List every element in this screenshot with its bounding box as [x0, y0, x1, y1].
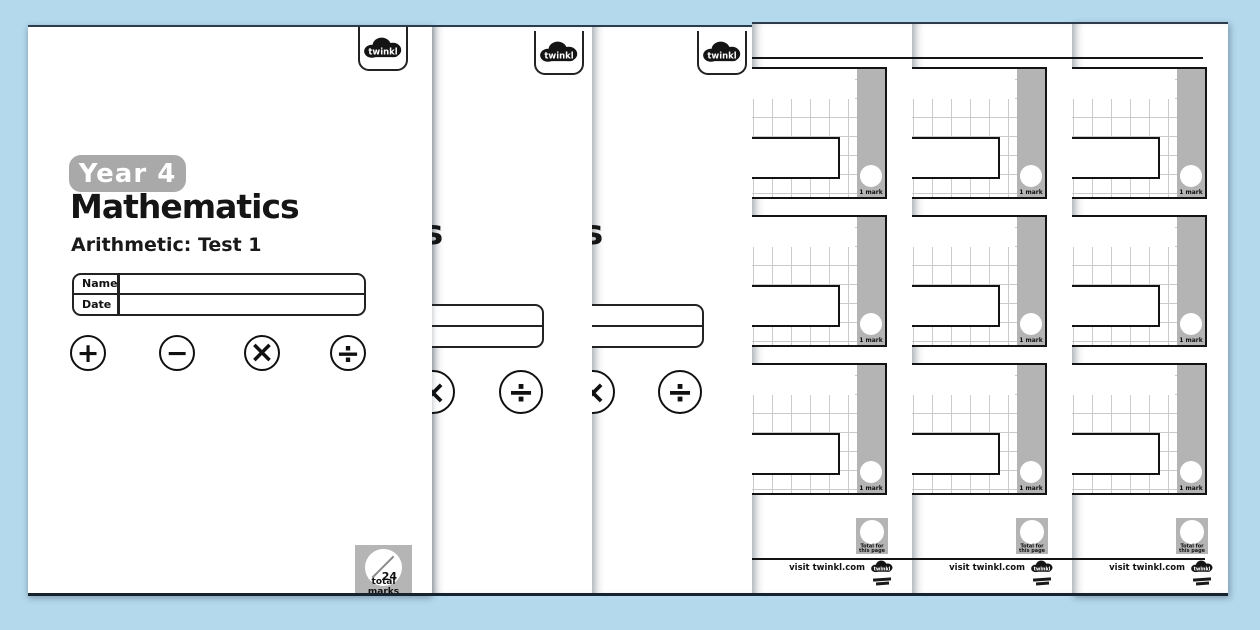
- mark-circle: [860, 165, 882, 187]
- name-date-table: Name Date: [72, 273, 366, 316]
- mark-circle: [1020, 165, 1042, 187]
- mark-column: 1 mark: [857, 365, 885, 493]
- table-divider: [432, 325, 542, 327]
- clipped-title-tail: s: [592, 213, 603, 253]
- cover-page-strip-2: twinkl s × ÷: [432, 25, 592, 596]
- page-subtitle: Arithmetic: Test 1: [71, 234, 262, 256]
- mark-label: 1 mark: [1177, 337, 1205, 344]
- multiply-icon: ×: [592, 370, 615, 414]
- mark-column: 1 mark: [857, 217, 885, 345]
- twinkl-cloud-icon: twinkl: [538, 39, 580, 65]
- mark-label: 1 mark: [1177, 485, 1205, 492]
- twinkl-cloud-icon: twinkl: [362, 35, 404, 61]
- twinkl-cloud-icon: twinkl: [701, 39, 743, 65]
- multiply-icon: ×: [244, 335, 280, 371]
- mark-label: 1 mark: [1017, 485, 1045, 492]
- question-text-area: [752, 69, 855, 99]
- mark-column: 1 mark: [1017, 365, 1045, 493]
- mark-label: 1 mark: [857, 189, 885, 196]
- mark-label: 1 mark: [1177, 189, 1205, 196]
- question-text-area: [912, 365, 1015, 395]
- mark-column: 1 mark: [1177, 69, 1205, 197]
- multiply-icon: ×: [432, 370, 455, 414]
- cover-page: twinkl Year 4 Mathematics Arithmetic: Te…: [28, 25, 432, 596]
- page-total-label-2: this page: [1019, 549, 1045, 554]
- plus-icon: +: [70, 335, 106, 371]
- question-page-strip-2: 1 mark 1 mark 1 mark Total for this page: [912, 22, 1072, 596]
- page-total-circle: [1180, 520, 1204, 544]
- svg-text:twinkl: twinkl: [1194, 566, 1211, 572]
- mark-circle: [1020, 461, 1042, 483]
- header-rule: [912, 57, 1072, 59]
- mark-circle: [1020, 313, 1042, 335]
- mark-label: 1 mark: [1017, 337, 1045, 344]
- answer-box: [912, 433, 1000, 475]
- mark-circle: [1180, 165, 1202, 187]
- page-total-label-2: this page: [1179, 549, 1205, 554]
- question-block: 1 mark: [1072, 215, 1207, 347]
- divide-icon: ÷: [330, 335, 366, 371]
- answer-box: [1072, 285, 1160, 327]
- svg-text:twinkl: twinkl: [1034, 566, 1051, 572]
- page-total-badge: Total for this page: [1176, 518, 1208, 554]
- date-field: [120, 295, 364, 315]
- minus-icon: −: [159, 335, 195, 371]
- clipped-title-tail: s: [432, 213, 443, 253]
- question-block: 1 mark: [752, 67, 887, 199]
- mark-label: 1 mark: [1017, 189, 1045, 196]
- mark-label: 1 mark: [857, 485, 885, 492]
- question-block: 1 mark: [912, 67, 1047, 199]
- name-field: [120, 275, 364, 293]
- twinkl-logo-tab: twinkl: [358, 27, 408, 71]
- question-block: 1 mark: [1072, 67, 1207, 199]
- question-text-area: [752, 365, 855, 395]
- divide-icon: ÷: [499, 370, 543, 414]
- footer-rule: [1072, 558, 1205, 560]
- question-text-area: [752, 217, 855, 247]
- answer-box: [1072, 137, 1160, 179]
- page-total-badge: Total for this page: [1016, 518, 1048, 554]
- header-rule: [752, 57, 912, 59]
- page-total-label-2: this page: [859, 549, 885, 554]
- mark-column: 1 mark: [1177, 365, 1205, 493]
- twinkl-logo-tab: twinkl: [697, 31, 747, 75]
- name-date-table-clipped: [592, 304, 704, 348]
- mark-column: 1 mark: [857, 69, 885, 197]
- footer-url: visit twinkl.com: [1072, 563, 1185, 573]
- name-date-table-clipped: [432, 304, 544, 348]
- question-block: 1 mark: [912, 363, 1047, 495]
- answer-box: [912, 137, 1000, 179]
- twinkl-logo-text: twinkl: [368, 47, 397, 57]
- header-rule: [1072, 57, 1203, 59]
- question-text-area: [1072, 365, 1175, 395]
- question-page-strip-3: 1 mark 1 mark 1 mark Total for this page: [1072, 22, 1228, 596]
- mark-circle: [1180, 313, 1202, 335]
- name-row: Name: [74, 275, 364, 295]
- answer-box: [752, 137, 840, 179]
- page-total-circle: [1020, 520, 1044, 544]
- question-text-area: [1072, 69, 1175, 99]
- mark-column: 1 mark: [1017, 217, 1045, 345]
- footer-url: visit twinkl.com: [912, 563, 1025, 573]
- question-block: 1 mark: [752, 363, 887, 495]
- question-block: 1 mark: [752, 215, 887, 347]
- date-row: Date: [74, 295, 364, 315]
- page-total-circle: [860, 520, 884, 544]
- answer-box: [752, 285, 840, 327]
- twinkl-logo-text: twinkl: [707, 51, 736, 61]
- twinkl-logo-tab: twinkl: [534, 31, 584, 75]
- name-label: Name: [74, 275, 120, 293]
- answer-box: [1072, 433, 1160, 475]
- preview-stage: twinkl Year 4 Mathematics Arithmetic: Te…: [0, 0, 1260, 630]
- twinkl-stamp-icon: twinkl: [1029, 559, 1055, 583]
- table-divider: [592, 325, 702, 327]
- mark-circle: [860, 313, 882, 335]
- date-label: Date: [74, 295, 120, 315]
- question-text-area: [1072, 217, 1175, 247]
- page-title: Mathematics: [70, 187, 299, 226]
- cover-page-strip-3: twinkl s × ÷: [592, 25, 752, 596]
- total-marks-label: total marks: [355, 577, 412, 596]
- answer-box: [912, 285, 1000, 327]
- question-page-strip-1: 1 mark 1 mark 1 mark Total for this page: [752, 22, 912, 596]
- mark-circle: [860, 461, 882, 483]
- footer-url: visit twinkl.com: [752, 563, 865, 573]
- mark-label: 1 mark: [857, 337, 885, 344]
- mark-circle: [1180, 461, 1202, 483]
- question-block: 1 mark: [1072, 363, 1207, 495]
- question-text-area: [912, 217, 1015, 247]
- svg-text:twinkl: twinkl: [874, 566, 891, 572]
- twinkl-stamp-icon: twinkl: [1189, 559, 1215, 583]
- mark-column: 1 mark: [1177, 217, 1205, 345]
- answer-box: [752, 433, 840, 475]
- page-total-badge: Total for this page: [856, 518, 888, 554]
- mark-column: 1 mark: [1017, 69, 1045, 197]
- question-text-area: [912, 69, 1015, 99]
- divide-icon: ÷: [658, 370, 702, 414]
- total-marks-badge: 24 total marks: [355, 545, 412, 596]
- twinkl-logo-text: twinkl: [544, 51, 573, 61]
- twinkl-stamp-icon: twinkl: [869, 559, 895, 583]
- question-block: 1 mark: [912, 215, 1047, 347]
